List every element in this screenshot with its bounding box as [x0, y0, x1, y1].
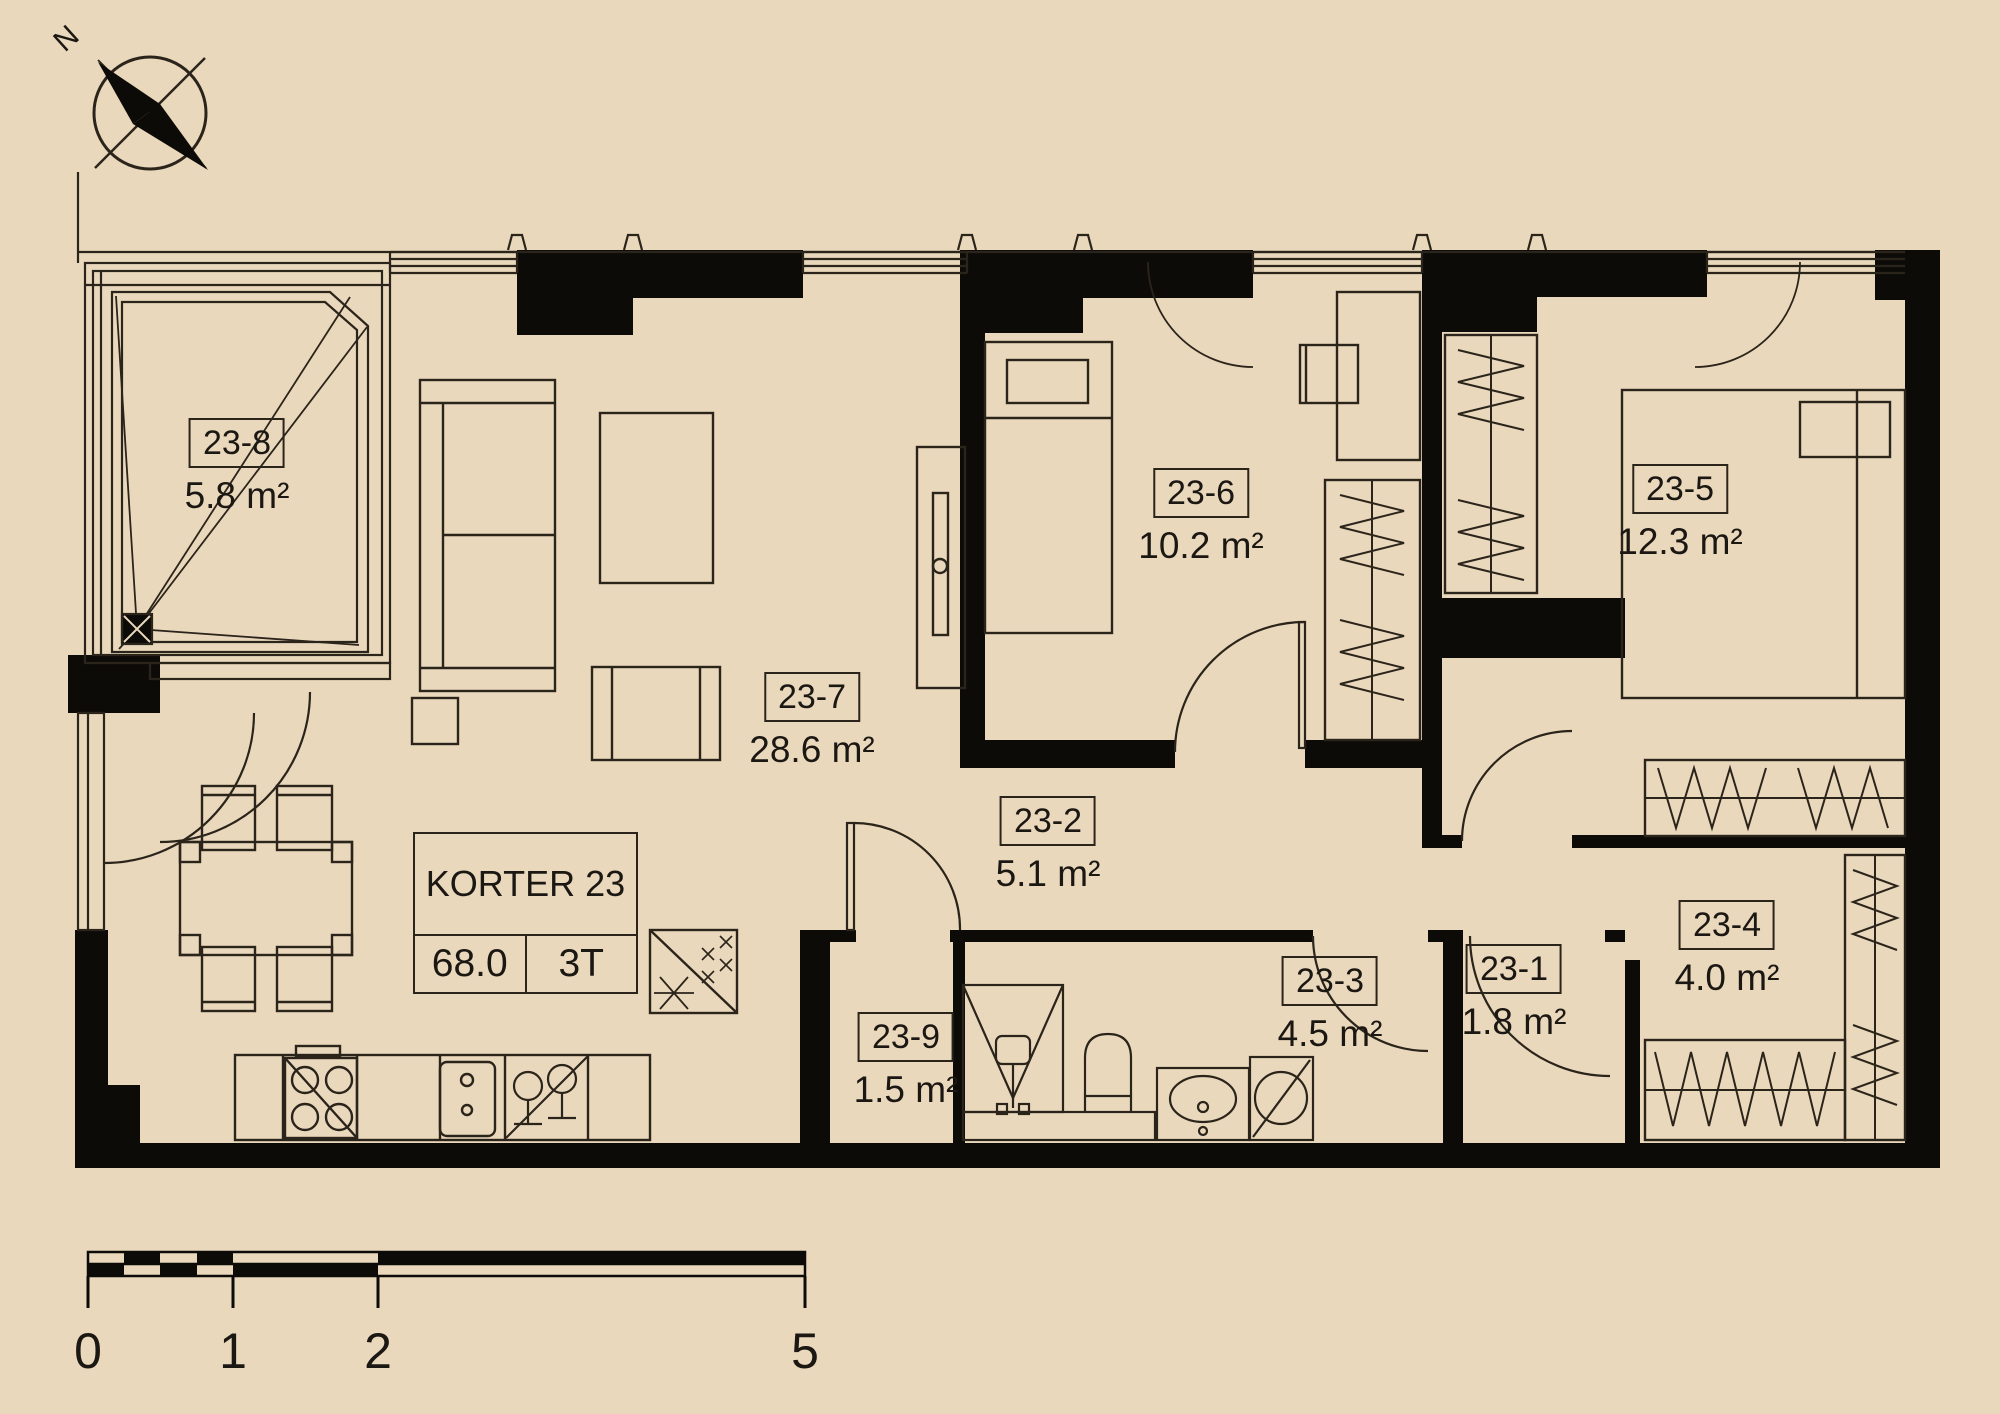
- room-id: 23-2: [1000, 796, 1096, 846]
- room-id: 23-5: [1632, 464, 1728, 514]
- room-label-23-6: 23-6 10.2 m²: [1138, 468, 1263, 567]
- room-label-23-4: 23-4 4.0 m²: [1675, 900, 1780, 999]
- room-id: 23-3: [1282, 956, 1378, 1006]
- apartment-info-table: KORTER 23 68.0 3T: [413, 832, 638, 994]
- room-id: 23-4: [1679, 900, 1775, 950]
- scale-bar: [88, 1252, 805, 1308]
- room-area: 1.5 m²: [854, 1069, 959, 1111]
- room-id: 23-6: [1153, 468, 1249, 518]
- apartment-name: KORTER 23: [415, 834, 636, 934]
- toilet: [1085, 1034, 1131, 1112]
- snowflake-icon: [654, 977, 694, 1009]
- wardrobe-23-4-bottom: [1645, 1040, 1845, 1140]
- kitchen-sink: [440, 1062, 495, 1136]
- room-id: 23-9: [858, 1012, 954, 1062]
- room-label-23-5: 23-5 12.3 m²: [1617, 464, 1742, 563]
- room-area: 4.5 m²: [1278, 1013, 1383, 1055]
- sofa: [420, 380, 555, 691]
- room-label-23-2: 23-2 5.1 m²: [996, 796, 1101, 895]
- room-id: 23-1: [1466, 944, 1562, 994]
- desk-and-chair: [1300, 292, 1420, 460]
- coffee-table: [600, 413, 713, 583]
- compass-icon: [94, 57, 208, 170]
- glass-rack: [506, 1056, 588, 1138]
- room-label-23-7: 23-7 28.6 m²: [749, 672, 874, 771]
- fridge: [650, 930, 737, 1013]
- wardrobe-23-4-side: [1845, 855, 1905, 1140]
- dining-chairs: [202, 786, 332, 1011]
- shower: [963, 985, 1155, 1140]
- room-area: 4.0 m²: [1675, 957, 1780, 999]
- apartment-total-area: 68.0: [415, 936, 525, 992]
- bathroom-sink: [1157, 1068, 1249, 1140]
- closet-rail-23-5: [1645, 760, 1905, 836]
- dining-table: [180, 842, 352, 955]
- room-label-23-8: 23-8 5.8 m²: [185, 418, 290, 517]
- scale-label-2: 2: [364, 1322, 392, 1380]
- scale-label-0: 0: [74, 1322, 102, 1380]
- armchair: [592, 667, 720, 760]
- floor-plan-page: 23-8 5.8 m² 23-7 28.6 m² 23-6 10.2 m² 23…: [0, 0, 2000, 1414]
- stove: [285, 1046, 357, 1138]
- walls: [68, 250, 1940, 1168]
- room-id: 23-8: [189, 418, 285, 468]
- room-area: 12.3 m²: [1617, 521, 1742, 563]
- washing-machine: [1250, 1057, 1313, 1140]
- room-label-23-1: 23-1 1.8 m²: [1462, 944, 1567, 1043]
- tv-cabinet: [917, 447, 965, 688]
- room-area: 5.8 m²: [185, 475, 290, 517]
- bed-single: [985, 342, 1112, 633]
- room-area: 28.6 m²: [749, 729, 874, 771]
- scale-label-5: 5: [791, 1322, 819, 1380]
- apartment-type: 3T: [525, 936, 637, 992]
- room-label-23-9: 23-9 1.5 m²: [854, 1012, 959, 1111]
- room-area: 5.1 m²: [996, 853, 1101, 895]
- room-area: 1.8 m²: [1462, 1001, 1567, 1043]
- wardrobe-23-6: [1325, 480, 1420, 740]
- room-area: 10.2 m²: [1138, 525, 1263, 567]
- wardrobe-23-5: [1445, 335, 1537, 593]
- scale-label-1: 1: [219, 1322, 247, 1380]
- floor-plan-drawing: [0, 0, 2000, 1414]
- room-label-23-3: 23-3 4.5 m²: [1278, 956, 1383, 1055]
- pouf: [412, 698, 458, 744]
- room-id: 23-7: [764, 672, 860, 722]
